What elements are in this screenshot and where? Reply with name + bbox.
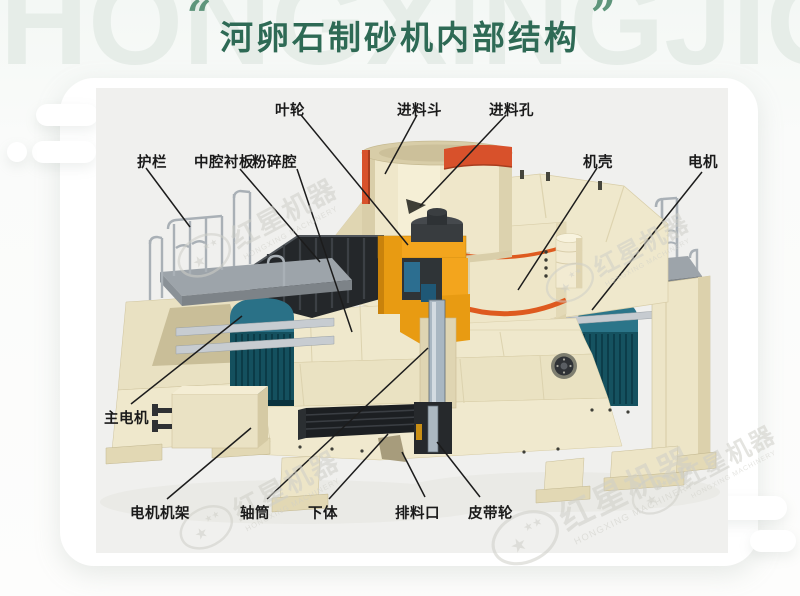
- page: { "page": { "background_watermark": "HON…: [0, 0, 800, 596]
- page-title: 河卵石制砂机内部结构: [220, 19, 580, 56]
- leader-line-guardrail: [146, 168, 190, 227]
- svg-text:★: ★: [192, 523, 212, 544]
- svg-text:★★: ★★: [521, 515, 544, 535]
- page-title-row: “河卵石制砂机内部结构”: [0, 16, 800, 60]
- machine-illustration: ★★★红星机器HONGXING MACHINERY★★★红星机器HONGXING…: [0, 0, 800, 596]
- svg-text:★★: ★★: [200, 236, 219, 252]
- pillar-cylinder: [556, 234, 582, 289]
- svg-text:★: ★: [506, 532, 530, 558]
